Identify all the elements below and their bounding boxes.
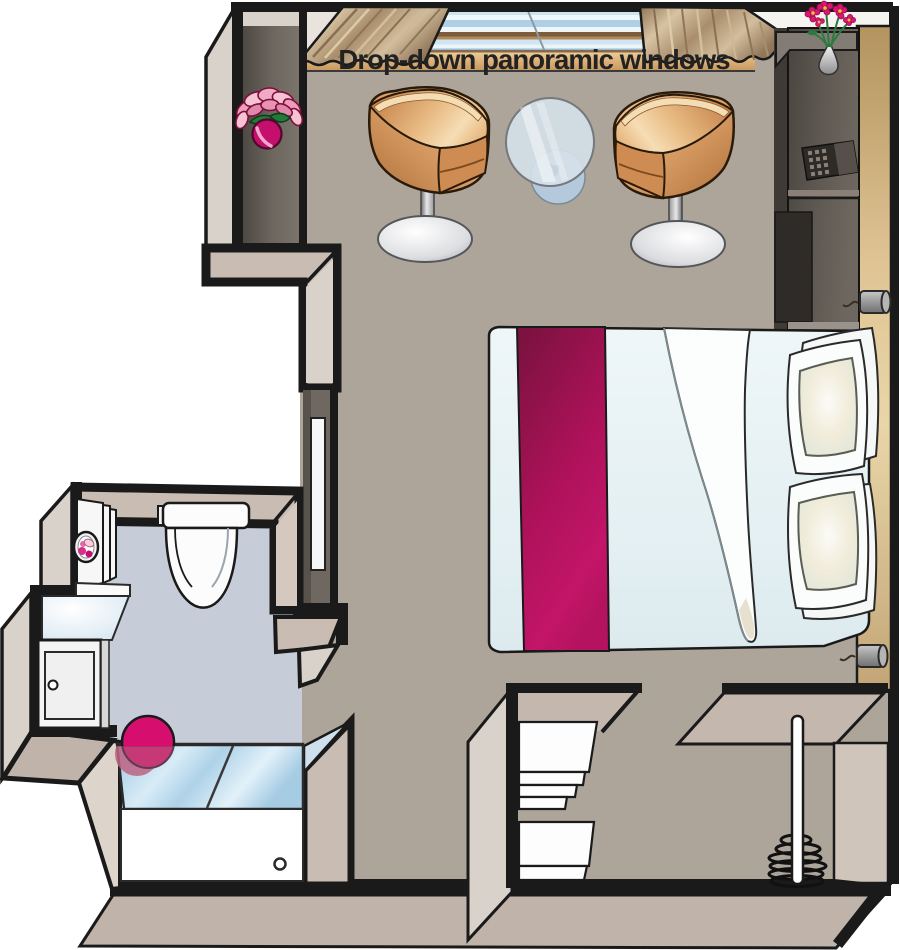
svg-text:Drop-down panoramic windows: Drop-down panoramic windows	[338, 44, 730, 75]
